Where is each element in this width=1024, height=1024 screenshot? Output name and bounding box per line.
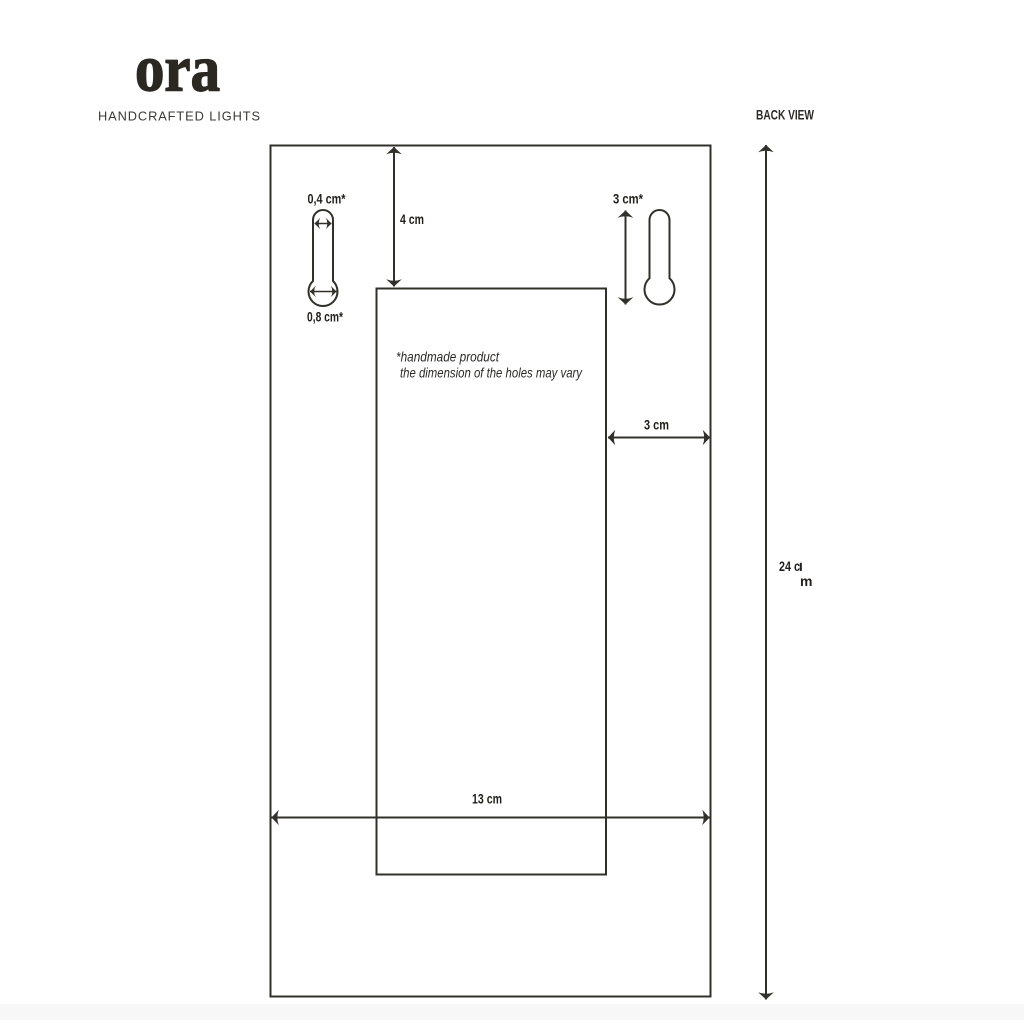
svg-text:*handmade product: *handmade product — [396, 350, 500, 365]
svg-text:BACK VIEW: BACK VIEW — [756, 108, 814, 123]
svg-text:ora: ora — [135, 33, 220, 106]
svg-text:3 cm*: 3 cm* — [613, 191, 643, 207]
svg-text:m: m — [800, 573, 812, 589]
svg-text:24 c: 24 c — [779, 558, 800, 574]
svg-text:HANDCRAFTED LIGHTS: HANDCRAFTED LIGHTS — [98, 109, 260, 124]
svg-text:0,4 cm*: 0,4 cm* — [308, 191, 346, 207]
svg-text:0,8 cm*: 0,8 cm* — [307, 309, 343, 325]
svg-text:the dimension of the holes may: the dimension of the holes may vary — [400, 366, 583, 381]
svg-text:13 cm: 13 cm — [472, 791, 502, 807]
svg-text:4 cm: 4 cm — [400, 211, 424, 227]
svg-text:3 cm: 3 cm — [644, 417, 669, 433]
